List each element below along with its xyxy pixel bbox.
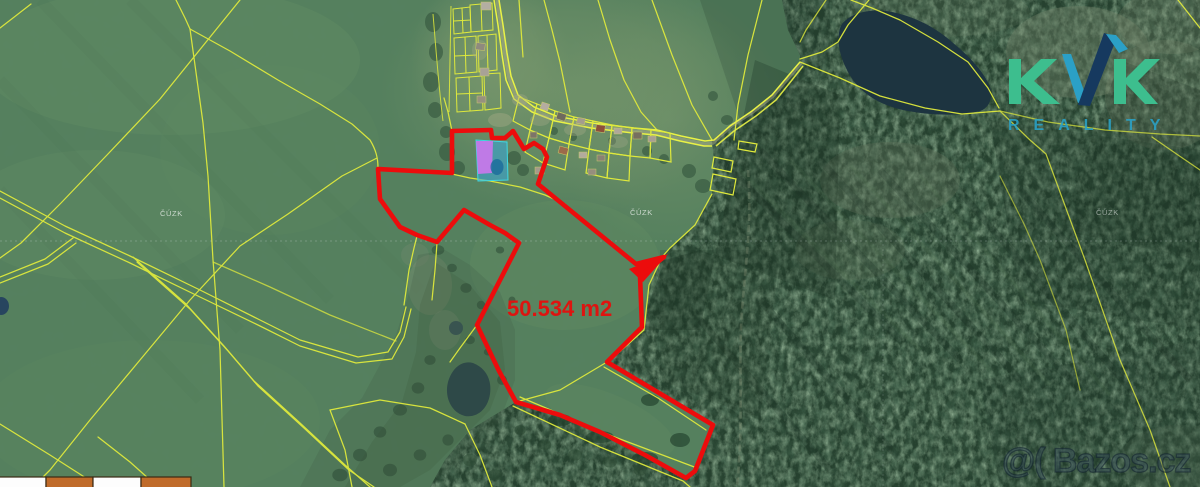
svg-text:REALITY: REALITY xyxy=(1008,117,1174,134)
svg-text:ČÚZK: ČÚZK xyxy=(630,208,653,217)
svg-text:@( Bazos.cz: @( Bazos.cz xyxy=(1002,442,1190,480)
svg-text:50.534 m2: 50.534 m2 xyxy=(507,296,612,321)
svg-text:ČÚZK: ČÚZK xyxy=(1096,208,1119,217)
svg-text:ČÚZK: ČÚZK xyxy=(160,209,183,218)
